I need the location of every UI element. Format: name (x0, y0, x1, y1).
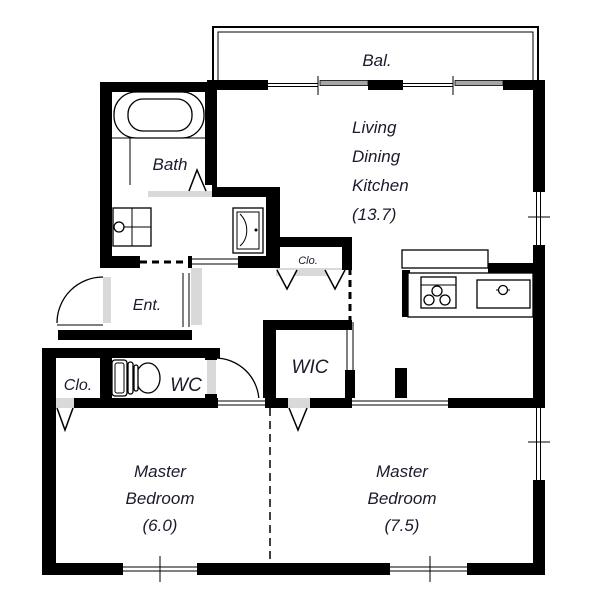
svg-text:Kitchen: Kitchen (352, 176, 409, 195)
floor-plan: Bal. Living Dining Kitchen (13.7) Bath E… (0, 0, 600, 600)
svg-text:Master: Master (376, 462, 429, 481)
washroom-folding-opening (140, 256, 188, 268)
wic-door (288, 398, 310, 430)
master-bedroom-6-label: Master Bedroom (6.0) (126, 462, 195, 535)
svg-text:Dining: Dining (352, 147, 401, 166)
wall-hallcloset-right (342, 237, 352, 270)
wall-wic-top (263, 320, 352, 330)
window-pane-gray (320, 81, 368, 86)
ldk-label: Living Dining Kitchen (13.7) (352, 118, 409, 224)
wall-bath-top (100, 82, 217, 92)
wall-bedroom-top-a (74, 398, 218, 408)
svg-text:(13.7): (13.7) (352, 205, 396, 224)
washroom-sliding-door (192, 256, 238, 268)
wall-bedroom-top-d (448, 398, 545, 408)
wall-bottom (42, 563, 545, 575)
wic-label: WIC (292, 357, 329, 378)
window-pane-gray (455, 81, 503, 86)
wall-hallcloset-top (266, 237, 352, 247)
stove-icon (421, 277, 456, 308)
wall-wc-top (42, 348, 220, 358)
wall-entrance-bottom (58, 330, 192, 340)
bath-label: Bath (153, 155, 188, 174)
bedroom-closet-door (56, 398, 74, 430)
entrance-door-arc (57, 277, 111, 325)
svg-text:Bedroom: Bedroom (126, 489, 195, 508)
svg-text:Living: Living (352, 118, 397, 137)
hall-ldk-opening (347, 268, 353, 370)
wall-left-lower (42, 348, 56, 575)
sink-icon (477, 280, 530, 308)
walls (42, 80, 545, 575)
wall-washroom-right (266, 187, 280, 268)
entrance-step-edge (183, 268, 202, 327)
wall-bedroom-top-b (265, 398, 288, 408)
bath-door (148, 170, 212, 197)
hall-closet-label: Clo. (298, 255, 318, 267)
wc-label: WC (170, 375, 202, 396)
bedroom75-sliding-door (352, 398, 448, 408)
wall-washroom-bottom (100, 256, 280, 268)
wall-kitchen-mid (488, 263, 533, 273)
hall-closet-doors (276, 268, 345, 289)
wall-ldk-stub (395, 368, 407, 400)
svg-text:Master: Master (134, 462, 187, 481)
svg-text:(6.0): (6.0) (143, 516, 178, 535)
wall-right (533, 80, 545, 575)
master-bedroom-75-label: Master Bedroom (7.5) (368, 462, 437, 535)
wall-wic-left (263, 320, 276, 408)
bedroom-closet-label: Clo. (64, 377, 92, 394)
floor-plan-drawing: Bal. Living Dining Kitchen (13.7) Bath E… (0, 0, 600, 600)
washer-pan-icon (113, 208, 151, 246)
balcony-label: Bal. (362, 51, 391, 70)
wall-bath-left (100, 82, 112, 268)
svg-text:Bedroom: Bedroom (368, 489, 437, 508)
toilet-icon (112, 360, 160, 396)
wall-bedroom-top-c (310, 398, 352, 408)
wall-bath-right (205, 82, 217, 192)
svg-text:(7.5): (7.5) (385, 516, 420, 535)
entrance-label: Ent. (133, 297, 161, 314)
vanity-icon (233, 208, 263, 253)
bedroom6-sliding-door (218, 398, 265, 408)
